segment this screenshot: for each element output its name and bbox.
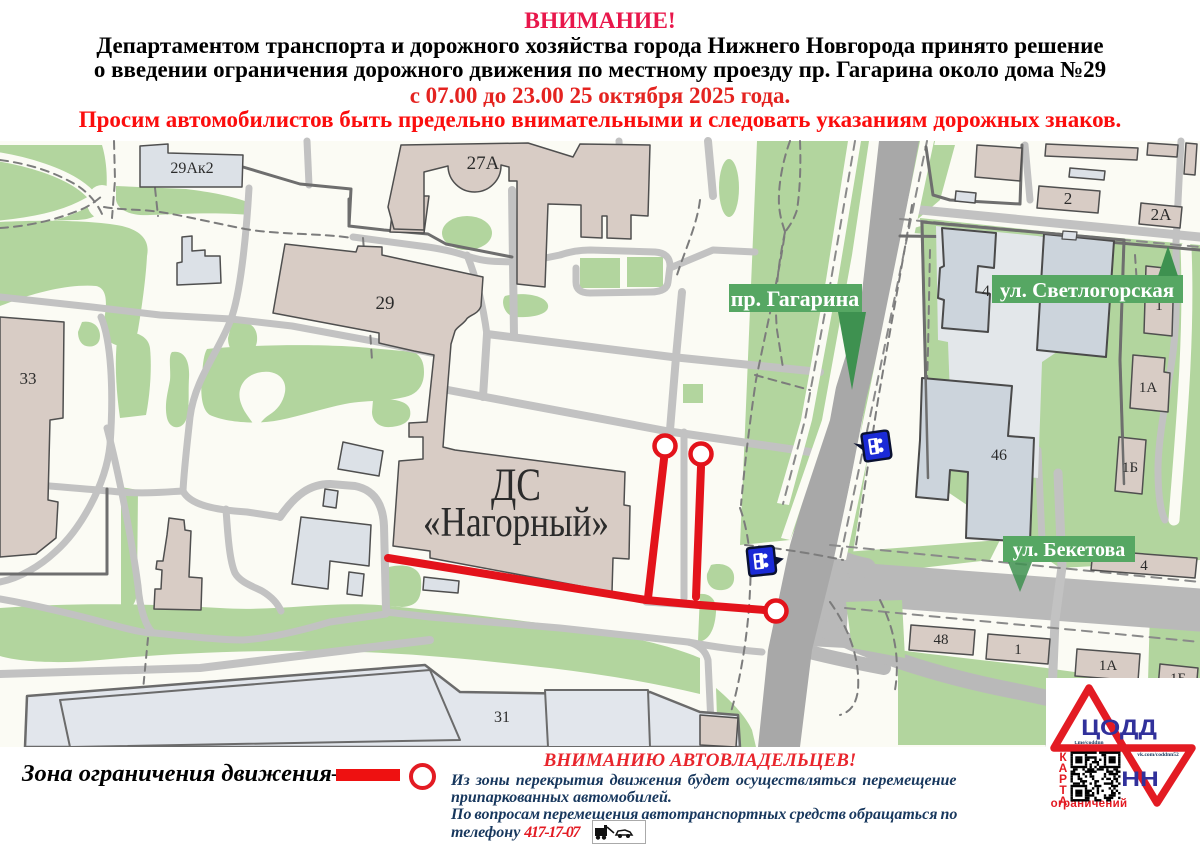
svg-text:2А: 2А bbox=[1151, 205, 1173, 224]
svg-text:ул. Светлогорская: ул. Светлогорская bbox=[1000, 278, 1174, 302]
svg-text:4: 4 bbox=[982, 283, 990, 300]
svg-text:46: 46 bbox=[991, 447, 1007, 464]
svg-text:1А: 1А bbox=[1139, 380, 1158, 396]
svg-text:ул. Бекетова: ул. Бекетова bbox=[1013, 539, 1126, 561]
svg-text:48: 48 bbox=[934, 632, 949, 648]
svg-text:1: 1 bbox=[1014, 642, 1022, 658]
svg-text:«Нагорный»: «Нагорный» bbox=[423, 500, 609, 546]
svg-text:t.me/coddnn: t.me/coddnn bbox=[1074, 740, 1103, 746]
svg-text:ЦОДД: ЦОДД bbox=[1081, 716, 1157, 741]
svg-text:1Б: 1Б bbox=[1122, 460, 1138, 476]
svg-text:29Ак2: 29Ак2 bbox=[170, 160, 213, 177]
svg-text:2: 2 bbox=[1064, 189, 1073, 208]
svg-text:31: 31 bbox=[494, 709, 510, 726]
svg-text:1А: 1А bbox=[1099, 658, 1118, 674]
svg-text:27А: 27А bbox=[467, 153, 500, 174]
svg-text:33: 33 bbox=[20, 369, 37, 388]
svg-text:пр. Гагарина: пр. Гагарина bbox=[731, 286, 860, 311]
svg-text:vk.com/coddnn52: vk.com/coddnn52 bbox=[1137, 752, 1179, 758]
svg-text:4: 4 bbox=[1140, 558, 1148, 574]
svg-text:29: 29 bbox=[376, 293, 395, 314]
svg-text:НН: НН bbox=[1121, 767, 1159, 790]
